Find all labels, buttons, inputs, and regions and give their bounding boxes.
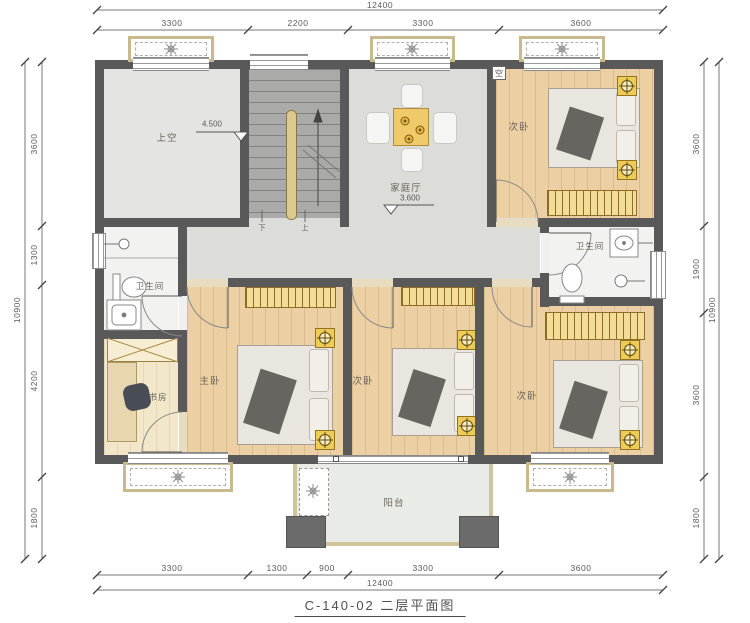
door-threshold xyxy=(179,296,187,330)
nightstand xyxy=(315,328,335,348)
wall-segment xyxy=(178,339,187,412)
balcony-planter xyxy=(299,468,329,516)
dim-label: 12400 xyxy=(367,0,393,10)
wardrobe xyxy=(245,287,336,308)
blanket xyxy=(559,381,608,439)
drawing-title: C-140-02 二层平面图 xyxy=(295,595,466,617)
pillow xyxy=(454,352,474,390)
level-label: 4.500 xyxy=(202,120,222,129)
seat-cushion xyxy=(433,112,457,144)
dim-label: 3600 xyxy=(571,18,592,28)
column xyxy=(459,516,499,548)
dim-label: 3600 xyxy=(571,563,592,573)
room-label-study: 书房 xyxy=(148,391,167,403)
blanket xyxy=(243,369,296,435)
dim-label: 10900 xyxy=(12,297,22,323)
ac-unit-label: 空 xyxy=(495,68,503,79)
stair-down-label: 下 xyxy=(259,223,266,233)
level-label: 3.600 xyxy=(400,194,420,203)
bathroom-left-floor xyxy=(104,227,178,330)
room-label-master: 主卧 xyxy=(199,373,220,387)
wall-segment xyxy=(340,60,349,227)
study-cabinet xyxy=(107,338,178,362)
corridor-floor xyxy=(187,218,540,287)
seat-cushion xyxy=(366,112,390,144)
door-threshold xyxy=(179,412,187,452)
bay-window xyxy=(526,462,614,492)
bay-window xyxy=(123,462,233,492)
blanket xyxy=(555,106,603,160)
dim-label: 12400 xyxy=(367,578,393,588)
dim-label: 1900 xyxy=(691,259,701,280)
seat-cushion xyxy=(401,148,423,172)
wall-segment xyxy=(487,218,496,227)
dim-label: 1800 xyxy=(29,508,39,529)
window xyxy=(650,251,666,299)
door-threshold xyxy=(541,233,549,273)
door-post xyxy=(333,456,339,462)
wall-segment xyxy=(475,278,484,464)
nightstand xyxy=(620,430,640,450)
room-label-bedroom: 次卧 xyxy=(352,373,373,387)
room-label-void: 上空 xyxy=(156,130,177,144)
wall-segment xyxy=(540,297,663,306)
dim-label: 3300 xyxy=(162,563,183,573)
pillow xyxy=(616,92,636,126)
door-threshold xyxy=(492,279,532,287)
wardrobe xyxy=(547,190,637,216)
dim-label: 4200 xyxy=(29,371,39,392)
wall-segment xyxy=(178,218,187,296)
nightstand xyxy=(620,340,640,360)
bed xyxy=(548,88,640,168)
pillow xyxy=(616,130,636,164)
dim-label: 1300 xyxy=(29,245,39,266)
wardrobe xyxy=(545,312,645,340)
wall-segment xyxy=(95,330,187,339)
wall-segment xyxy=(343,278,352,464)
dim-label: 1800 xyxy=(691,508,701,529)
dim-label: 2200 xyxy=(288,18,309,28)
dim-label: 3300 xyxy=(413,563,434,573)
window-sill xyxy=(524,57,600,71)
wall-segment xyxy=(240,60,249,227)
room-label-bedroom: 次卧 xyxy=(516,388,537,402)
wall-segment xyxy=(538,218,663,227)
nightstand xyxy=(457,330,477,350)
window xyxy=(250,54,308,70)
floor-plan-canvas: 12400 3300 2200 3300 3600 3300 1300 900 … xyxy=(0,0,750,623)
stair-handrail xyxy=(286,110,297,220)
window xyxy=(92,233,106,269)
nightstand xyxy=(457,416,477,436)
blanket xyxy=(398,369,445,427)
stair-up-label: 上 xyxy=(302,223,309,233)
wall-segment xyxy=(540,222,549,233)
nightstand xyxy=(617,76,637,96)
dim-label: 3300 xyxy=(413,18,434,28)
room-label-bathroom: 卫生间 xyxy=(576,240,605,252)
dim-label: 3600 xyxy=(29,134,39,155)
sliding-door xyxy=(318,455,468,464)
pillow xyxy=(309,349,329,392)
door-threshold xyxy=(187,279,228,287)
dim-label: 3600 xyxy=(691,385,701,406)
seat-cushion xyxy=(401,84,423,108)
wardrobe xyxy=(401,287,475,306)
door-threshold xyxy=(352,279,393,287)
window-sill xyxy=(133,57,209,71)
window-sill xyxy=(128,452,228,464)
dim-label: 900 xyxy=(319,563,335,573)
pillow xyxy=(619,364,639,402)
door-threshold xyxy=(496,219,538,227)
room-label-family-hall: 家庭厅 xyxy=(390,180,422,194)
wall-segment xyxy=(228,278,352,287)
wall-segment xyxy=(95,218,249,227)
nightstand xyxy=(315,430,335,450)
dim-label: 3300 xyxy=(162,18,183,28)
window-sill xyxy=(531,452,609,464)
dim-label: 10900 xyxy=(707,297,717,323)
dim-label: 1300 xyxy=(267,563,288,573)
door-post xyxy=(458,456,464,462)
column xyxy=(286,516,326,548)
nightstand xyxy=(617,160,637,180)
window-sill xyxy=(375,57,450,71)
wall-segment xyxy=(487,60,496,227)
dim-label: 3600 xyxy=(691,134,701,155)
room-label-balcony: 阳台 xyxy=(383,495,404,509)
ac-unit-box: 空 xyxy=(492,66,506,80)
wall-segment xyxy=(532,278,540,287)
room-label-bathroom: 卫生间 xyxy=(136,280,165,292)
bathroom-right-floor xyxy=(549,227,654,297)
room-label-bedroom: 次卧 xyxy=(508,119,529,133)
tea-table xyxy=(393,108,429,146)
